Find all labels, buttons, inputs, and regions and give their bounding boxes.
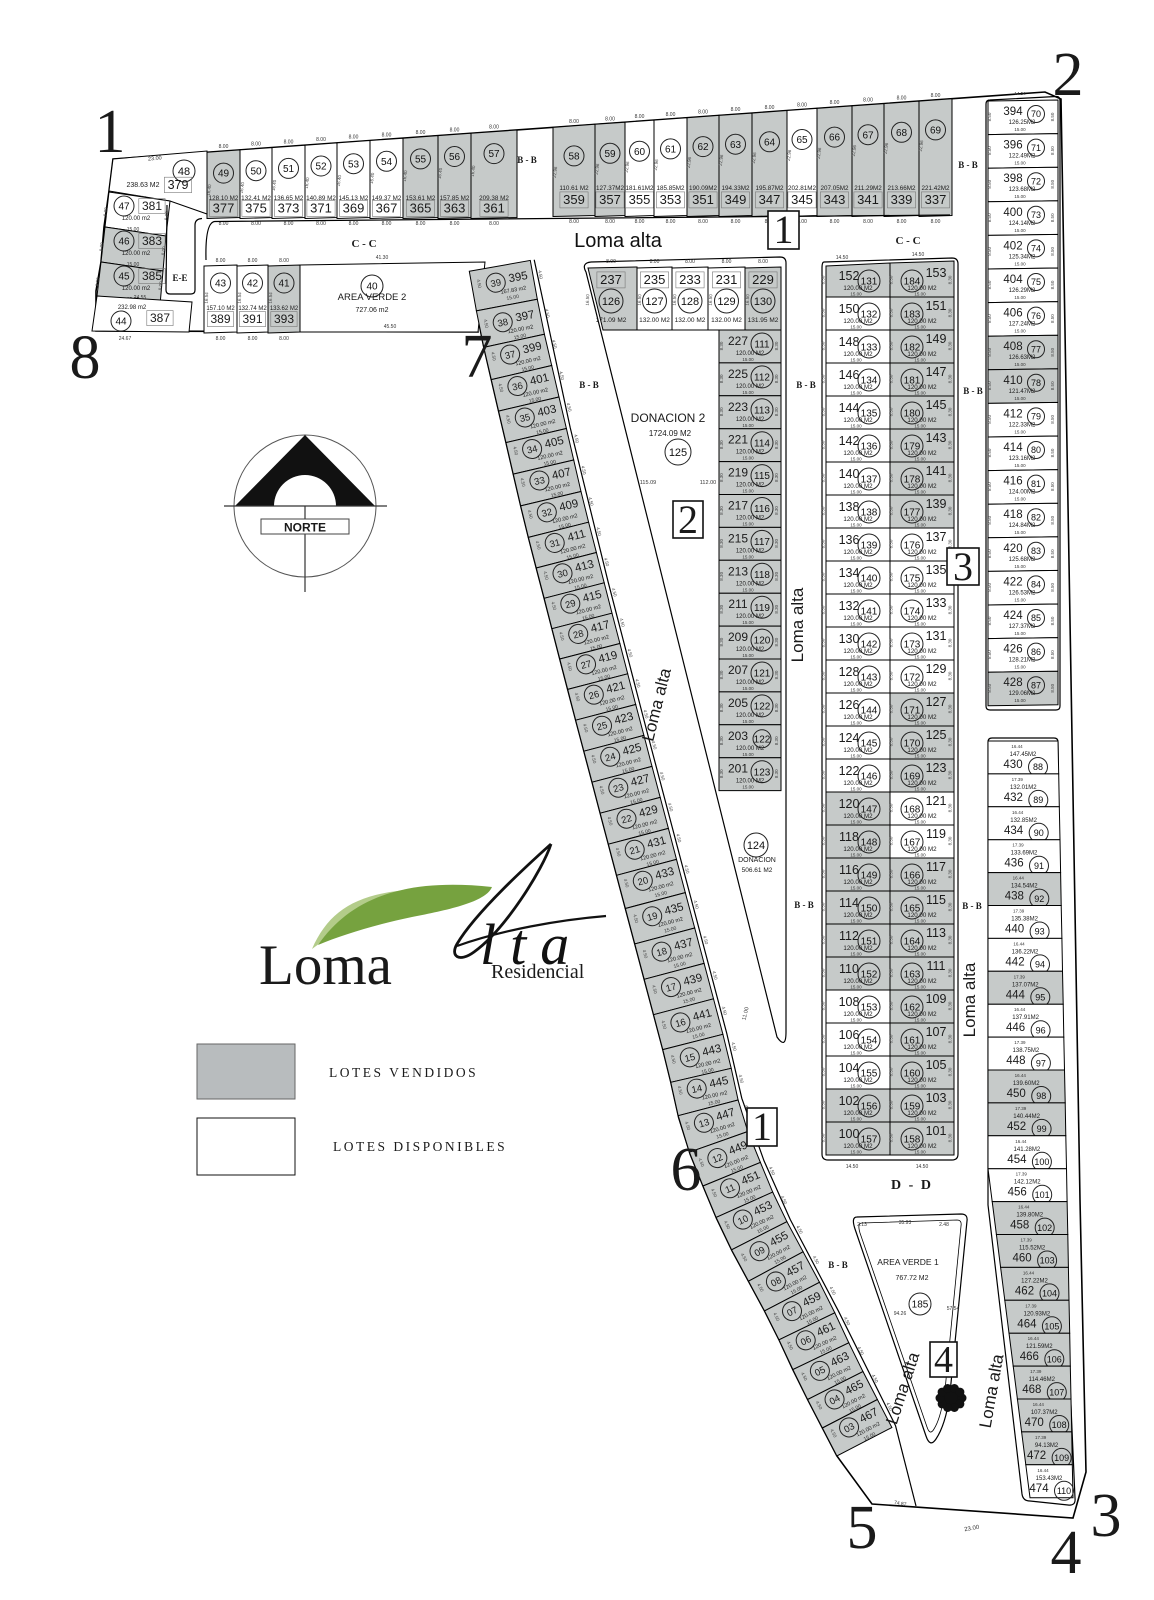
svg-text:85: 85: [1031, 613, 1041, 623]
svg-text:132.85M2: 132.85M2: [1010, 818, 1037, 824]
svg-text:8.30: 8.30: [821, 374, 826, 383]
svg-text:122.49M2: 122.49M2: [1009, 154, 1036, 160]
svg-text:72: 72: [1031, 176, 1041, 186]
svg-text:17.39: 17.39: [1020, 1238, 1032, 1243]
svg-text:8.30: 8.30: [719, 637, 724, 646]
svg-text:15.00: 15.00: [1014, 463, 1026, 468]
svg-text:8.30: 8.30: [948, 341, 953, 350]
svg-text:17.39: 17.39: [1014, 974, 1026, 979]
svg-text:8.30: 8.30: [889, 572, 894, 581]
svg-text:458: 458: [1010, 1220, 1029, 1232]
svg-text:125.34M2: 125.34M2: [1009, 254, 1036, 260]
svg-text:138.75M2: 138.75M2: [1013, 1048, 1040, 1054]
svg-text:8.00: 8.00: [216, 258, 226, 264]
svg-text:14.50: 14.50: [846, 1164, 859, 1170]
svg-text:229: 229: [752, 272, 774, 287]
svg-text:16.44: 16.44: [1023, 1270, 1035, 1275]
svg-text:108: 108: [1052, 1420, 1067, 1430]
svg-text:387: 387: [150, 311, 170, 325]
svg-text:1: 1: [95, 98, 126, 166]
svg-text:59: 59: [604, 149, 616, 160]
svg-text:127: 127: [926, 695, 947, 709]
svg-text:49: 49: [218, 169, 230, 180]
svg-text:140.44M2: 140.44M2: [1013, 1114, 1040, 1120]
svg-text:129: 129: [926, 662, 947, 676]
svg-text:207.05M2: 207.05M2: [820, 185, 849, 192]
svg-text:137: 137: [926, 530, 947, 544]
svg-text:8.00: 8.00: [666, 219, 676, 225]
svg-text:15.00: 15.00: [850, 424, 862, 429]
svg-text:506.61 M2: 506.61 M2: [742, 867, 773, 874]
svg-text:446: 446: [1006, 1022, 1025, 1034]
svg-text:45.50: 45.50: [384, 324, 397, 330]
svg-text:107.37M2: 107.37M2: [1031, 1410, 1058, 1416]
svg-text:86: 86: [1031, 647, 1041, 657]
svg-text:AREA VERDE 1: AREA VERDE 1: [877, 1257, 939, 1267]
svg-text:132.01M2: 132.01M2: [1010, 785, 1037, 791]
svg-text:88: 88: [1033, 762, 1043, 772]
svg-text:8.30: 8.30: [719, 571, 724, 580]
svg-text:16.44: 16.44: [1018, 1205, 1030, 1210]
svg-text:359: 359: [563, 192, 585, 207]
svg-text:15.00: 15.00: [850, 391, 862, 396]
svg-text:1: 1: [774, 207, 794, 252]
svg-text:400: 400: [1003, 207, 1022, 219]
svg-text:103: 103: [1040, 1256, 1055, 1266]
svg-text:127.37M2: 127.37M2: [596, 185, 625, 192]
svg-text:420: 420: [1003, 543, 1022, 555]
svg-text:238.63 M2: 238.63 M2: [126, 182, 159, 189]
svg-text:111: 111: [926, 959, 945, 973]
svg-text:394: 394: [1003, 106, 1023, 118]
svg-text:98: 98: [1036, 1091, 1046, 1101]
svg-text:8.30: 8.30: [889, 737, 894, 746]
svg-text:43: 43: [215, 279, 227, 290]
svg-text:8.30: 8.30: [889, 1100, 894, 1109]
svg-text:8.30: 8.30: [821, 605, 826, 614]
svg-text:139.60M2: 139.60M2: [1013, 1081, 1040, 1087]
svg-text:15.00: 15.00: [914, 985, 926, 990]
svg-text:Loma: Loma: [259, 934, 392, 997]
svg-text:8.30: 8.30: [948, 308, 953, 317]
svg-text:54: 54: [381, 157, 393, 168]
svg-text:66: 66: [829, 133, 841, 144]
svg-text:82: 82: [1031, 512, 1041, 522]
svg-text:126.53M2: 126.53M2: [1009, 590, 1036, 596]
svg-text:8.00: 8.00: [416, 221, 426, 227]
svg-text:77: 77: [1031, 344, 1041, 354]
svg-text:8.00: 8.00: [489, 221, 499, 227]
svg-text:15.00: 15.00: [1014, 665, 1026, 670]
svg-text:8.30: 8.30: [889, 473, 894, 482]
svg-text:114: 114: [839, 896, 859, 910]
svg-text:8.30: 8.30: [774, 374, 779, 383]
svg-text:129: 129: [717, 296, 735, 308]
svg-text:15.00: 15.00: [914, 589, 926, 594]
svg-text:15.00: 15.00: [1014, 530, 1026, 535]
svg-text:17.39: 17.39: [1030, 1369, 1042, 1374]
svg-text:418: 418: [1003, 509, 1022, 521]
svg-text:69: 69: [930, 126, 942, 137]
svg-text:341: 341: [857, 192, 879, 207]
svg-text:73: 73: [1031, 210, 1041, 220]
svg-text:139.80M2: 139.80M2: [1016, 1213, 1043, 1219]
svg-text:8.00: 8.00: [605, 219, 615, 225]
svg-text:402: 402: [1003, 240, 1022, 252]
svg-text:137.07M2: 137.07M2: [1012, 982, 1039, 988]
svg-text:8.30: 8.30: [889, 935, 894, 944]
svg-text:57.54: 57.54: [947, 1306, 960, 1312]
svg-text:4: 4: [934, 1339, 953, 1381]
svg-text:123: 123: [926, 761, 947, 775]
svg-text:17.39: 17.39: [1013, 909, 1025, 914]
svg-text:106: 106: [1047, 1354, 1062, 1364]
svg-text:428: 428: [1003, 677, 1022, 689]
svg-text:8.50: 8.50: [1050, 515, 1055, 524]
svg-text:15.00: 15.00: [742, 587, 754, 592]
svg-text:8: 8: [70, 324, 101, 392]
svg-text:8.00: 8.00: [284, 221, 294, 227]
svg-text:385: 385: [142, 269, 162, 283]
svg-text:40: 40: [366, 282, 378, 293]
svg-text:406: 406: [1003, 308, 1022, 320]
svg-text:15.00: 15.00: [850, 556, 862, 561]
svg-text:15.00: 15.00: [914, 919, 926, 924]
svg-text:8.00: 8.00: [489, 125, 499, 131]
svg-text:8.30: 8.30: [948, 836, 953, 845]
svg-text:120: 120: [839, 797, 860, 811]
svg-text:15.00: 15.00: [1014, 429, 1026, 434]
svg-text:15.00: 15.00: [850, 325, 862, 330]
svg-text:8.50: 8.50: [987, 247, 992, 256]
svg-text:105: 105: [926, 1058, 947, 1072]
svg-text:117: 117: [754, 537, 770, 548]
svg-text:8.50: 8.50: [987, 549, 992, 558]
svg-text:45: 45: [118, 272, 130, 283]
svg-text:15.00: 15.00: [914, 292, 926, 297]
svg-text:8.30: 8.30: [821, 506, 826, 515]
svg-text:91: 91: [1034, 861, 1044, 871]
svg-text:50: 50: [250, 166, 262, 177]
svg-text:90: 90: [1034, 828, 1044, 838]
svg-text:15.00: 15.00: [914, 325, 926, 330]
svg-text:8.30: 8.30: [719, 341, 724, 350]
svg-text:101: 101: [1035, 1190, 1050, 1200]
svg-text:83: 83: [1031, 546, 1041, 556]
svg-text:119: 119: [926, 827, 946, 841]
svg-text:130: 130: [839, 632, 860, 646]
svg-text:213: 213: [728, 564, 748, 578]
svg-text:122: 122: [839, 764, 860, 778]
svg-text:15.00: 15.00: [850, 1051, 862, 1056]
svg-text:78: 78: [1031, 378, 1041, 388]
svg-text:15.00: 15.00: [1014, 497, 1026, 502]
svg-text:363: 363: [444, 201, 466, 216]
svg-text:8.00: 8.00: [216, 336, 226, 342]
svg-text:16.50: 16.50: [585, 294, 591, 306]
svg-text:89: 89: [1033, 795, 1043, 805]
svg-text:17.39: 17.39: [1025, 1303, 1037, 1308]
svg-text:128.21M2: 128.21M2: [1009, 658, 1036, 664]
svg-text:8.30: 8.30: [774, 341, 779, 350]
svg-text:2: 2: [1053, 41, 1084, 109]
svg-text:424: 424: [1003, 610, 1023, 622]
svg-text:101: 101: [926, 1124, 947, 1138]
svg-text:133: 133: [926, 596, 947, 610]
svg-text:81: 81: [1031, 479, 1041, 489]
svg-text:8.00: 8.00: [765, 105, 775, 111]
svg-text:15.00: 15.00: [742, 686, 754, 691]
svg-text:DONACION 2: DONACION 2: [631, 411, 706, 425]
svg-text:15.00: 15.00: [850, 688, 862, 693]
svg-text:126: 126: [839, 698, 860, 712]
svg-text:452: 452: [1007, 1121, 1026, 1133]
svg-text:349: 349: [725, 192, 747, 207]
svg-text:8.30: 8.30: [948, 671, 953, 680]
svg-text:16.50: 16.50: [745, 294, 751, 306]
svg-text:134.54M2: 134.54M2: [1011, 884, 1038, 890]
svg-text:16.54: 16.54: [237, 292, 243, 304]
svg-text:8.30: 8.30: [889, 605, 894, 614]
svg-text:396: 396: [1003, 140, 1022, 152]
svg-text:8.30: 8.30: [774, 571, 779, 580]
svg-text:118: 118: [839, 830, 859, 844]
svg-text:118: 118: [754, 570, 770, 581]
svg-text:8.00: 8.00: [316, 221, 326, 227]
svg-text:8.30: 8.30: [889, 836, 894, 845]
svg-text:8.50: 8.50: [1050, 650, 1055, 659]
svg-text:94.26: 94.26: [894, 1311, 907, 1317]
svg-text:8.00: 8.00: [279, 336, 289, 342]
svg-text:115.09: 115.09: [640, 480, 656, 486]
svg-text:147: 147: [926, 365, 947, 379]
svg-text:8.30: 8.30: [821, 737, 826, 746]
svg-text:8.30: 8.30: [821, 1034, 826, 1043]
svg-text:15.00: 15.00: [850, 820, 862, 825]
svg-text:8.30: 8.30: [719, 440, 724, 449]
svg-text:454: 454: [1007, 1154, 1027, 1166]
svg-text:NORTE: NORTE: [284, 521, 326, 535]
svg-text:142: 142: [839, 434, 860, 448]
svg-text:8.00: 8.00: [863, 98, 873, 104]
svg-text:2: 2: [678, 497, 698, 542]
svg-text:464: 464: [1017, 1318, 1037, 1330]
svg-text:111: 111: [754, 340, 770, 351]
svg-text:8.50: 8.50: [987, 650, 992, 659]
svg-text:14.50: 14.50: [916, 1164, 929, 1170]
svg-text:8.00: 8.00: [450, 221, 460, 227]
svg-text:438: 438: [1005, 891, 1024, 903]
svg-text:15.00: 15.00: [850, 853, 862, 858]
svg-text:39: 39: [490, 277, 502, 290]
svg-text:153.43M2: 153.43M2: [1036, 1476, 1063, 1482]
svg-text:8.00: 8.00: [251, 142, 261, 148]
svg-text:15.00: 15.00: [850, 589, 862, 594]
svg-text:17.39: 17.39: [1035, 1435, 1047, 1440]
svg-text:8.30: 8.30: [948, 1034, 953, 1043]
svg-text:8.00: 8.00: [698, 219, 708, 225]
svg-text:41: 41: [278, 279, 290, 290]
svg-text:351: 351: [692, 192, 714, 207]
svg-text:104: 104: [839, 1061, 860, 1075]
svg-text:8.30: 8.30: [948, 1001, 953, 1010]
svg-text:8.00: 8.00: [931, 219, 941, 225]
svg-text:474: 474: [1029, 1483, 1049, 1495]
svg-text:123.16M2: 123.16M2: [1009, 456, 1036, 462]
svg-text:121: 121: [926, 794, 947, 808]
svg-text:15.00: 15.00: [742, 423, 754, 428]
svg-text:125: 125: [669, 447, 687, 459]
svg-text:8.30: 8.30: [948, 935, 953, 944]
svg-text:339: 339: [891, 192, 913, 207]
svg-text:8.50: 8.50: [987, 415, 992, 424]
svg-text:129.06M2: 129.06M2: [1009, 691, 1036, 697]
svg-text:16.44: 16.44: [1011, 744, 1023, 749]
svg-text:389: 389: [210, 312, 230, 326]
svg-text:105: 105: [1044, 1322, 1059, 1332]
svg-text:84: 84: [1031, 580, 1041, 590]
svg-text:337: 337: [925, 192, 947, 207]
svg-text:8.00: 8.00: [897, 95, 907, 101]
svg-text:219: 219: [728, 466, 748, 480]
svg-text:96: 96: [1036, 1025, 1046, 1035]
svg-text:15.00: 15.00: [914, 787, 926, 792]
svg-text:7: 7: [462, 323, 493, 391]
svg-text:434: 434: [1004, 825, 1024, 837]
svg-text:145: 145: [926, 398, 947, 412]
svg-text:147.45M2: 147.45M2: [1010, 752, 1037, 758]
svg-text:53: 53: [348, 159, 360, 170]
svg-text:8.30: 8.30: [889, 1001, 894, 1010]
svg-text:4: 4: [1051, 1519, 1082, 1587]
svg-text:205: 205: [728, 696, 748, 710]
svg-text:15.00: 15.00: [850, 292, 862, 297]
svg-text:74: 74: [1031, 244, 1041, 254]
svg-text:15.00: 15.00: [850, 1084, 862, 1089]
svg-text:8.30: 8.30: [821, 1067, 826, 1076]
svg-text:60: 60: [634, 147, 646, 158]
svg-text:195.87M2: 195.87M2: [755, 185, 784, 192]
svg-text:17.39: 17.39: [1012, 777, 1024, 782]
svg-text:8.30: 8.30: [774, 736, 779, 745]
svg-text:126: 126: [602, 296, 620, 308]
svg-text:767.72 M2: 767.72 M2: [895, 1275, 928, 1282]
svg-text:23.00: 23.00: [148, 155, 162, 162]
svg-text:15.00: 15.00: [1014, 698, 1026, 703]
svg-text:460: 460: [1013, 1253, 1032, 1265]
svg-text:B - B: B - B: [828, 1260, 848, 1270]
svg-text:15.00: 15.00: [850, 655, 862, 660]
svg-text:70: 70: [1031, 109, 1041, 119]
svg-text:15.00: 15.00: [1014, 329, 1026, 334]
svg-text:15.00: 15.00: [850, 1150, 862, 1155]
svg-text:16.44: 16.44: [1013, 941, 1025, 946]
svg-text:8.00: 8.00: [931, 93, 941, 99]
svg-text:143: 143: [926, 431, 947, 445]
svg-text:8.50: 8.50: [1050, 616, 1055, 625]
svg-text:151: 151: [926, 299, 947, 313]
svg-text:15.00: 15.00: [914, 688, 926, 693]
svg-text:8.00: 8.00: [569, 119, 579, 125]
svg-text:185: 185: [912, 1300, 929, 1311]
svg-text:61: 61: [665, 145, 677, 156]
svg-text:8.30: 8.30: [821, 803, 826, 812]
svg-text:120.93M2: 120.93M2: [1024, 1311, 1051, 1317]
svg-text:106: 106: [839, 1028, 860, 1042]
svg-text:141.28M2: 141.28M2: [1014, 1147, 1041, 1153]
svg-text:121.47M2: 121.47M2: [1009, 389, 1036, 395]
svg-text:416: 416: [1003, 476, 1022, 488]
svg-text:8.30: 8.30: [774, 769, 779, 778]
svg-text:8.50: 8.50: [1050, 347, 1055, 356]
svg-text:8.30: 8.30: [948, 440, 953, 449]
svg-text:8.50: 8.50: [1050, 146, 1055, 155]
svg-text:8.30: 8.30: [889, 374, 894, 383]
svg-text:94: 94: [1035, 960, 1045, 970]
svg-text:8.50: 8.50: [987, 381, 992, 390]
svg-text:430: 430: [1003, 759, 1022, 771]
svg-text:8.00: 8.00: [349, 221, 359, 227]
svg-text:201: 201: [728, 762, 748, 776]
svg-text:8.30: 8.30: [774, 604, 779, 613]
svg-text:15.00: 15.00: [914, 1150, 926, 1155]
svg-text:8.30: 8.30: [774, 703, 779, 712]
svg-text:107: 107: [1049, 1387, 1064, 1397]
svg-text:15.00: 15.00: [1014, 127, 1026, 132]
svg-text:8.50: 8.50: [1050, 549, 1055, 558]
svg-text:8.30: 8.30: [948, 737, 953, 746]
svg-text:8.50: 8.50: [1050, 247, 1055, 256]
svg-text:5: 5: [847, 1494, 878, 1562]
svg-text:8.30: 8.30: [719, 506, 724, 515]
svg-text:15.00: 15.00: [914, 457, 926, 462]
svg-text:15.00: 15.00: [1014, 161, 1026, 166]
svg-text:16.44: 16.44: [1015, 1073, 1027, 1078]
svg-text:8.50: 8.50: [987, 482, 992, 491]
svg-text:8.00: 8.00: [279, 258, 289, 264]
svg-text:130: 130: [754, 296, 772, 308]
svg-text:8.00: 8.00: [830, 100, 840, 106]
svg-text:8.30: 8.30: [821, 539, 826, 548]
svg-text:367: 367: [376, 201, 398, 216]
svg-text:8.00: 8.00: [685, 259, 695, 265]
svg-text:8.30: 8.30: [948, 869, 953, 878]
svg-text:8.30: 8.30: [774, 407, 779, 416]
svg-text:456: 456: [1008, 1187, 1027, 1199]
svg-text:8.30: 8.30: [948, 803, 953, 812]
svg-text:136.22M2: 136.22M2: [1012, 949, 1039, 955]
svg-text:8.30: 8.30: [948, 539, 953, 548]
svg-text:109: 109: [1054, 1453, 1069, 1463]
svg-text:15.00: 15.00: [914, 754, 926, 759]
svg-text:15.00: 15.00: [742, 752, 754, 757]
svg-text:468: 468: [1022, 1384, 1041, 1396]
svg-text:8.30: 8.30: [889, 506, 894, 515]
svg-text:38: 38: [497, 317, 510, 330]
svg-text:115: 115: [926, 893, 946, 907]
svg-text:472: 472: [1027, 1450, 1046, 1462]
svg-text:8.30: 8.30: [821, 869, 826, 878]
svg-text:231: 231: [716, 272, 738, 287]
svg-text:16.54: 16.54: [204, 292, 210, 304]
svg-text:79: 79: [1031, 412, 1041, 422]
svg-text:94.13M2: 94.13M2: [1035, 1443, 1059, 1449]
svg-text:15.00: 15.00: [850, 919, 862, 924]
svg-text:15.00: 15.00: [914, 886, 926, 891]
svg-text:24.67: 24.67: [119, 336, 132, 342]
svg-text:16.44: 16.44: [1013, 876, 1025, 881]
svg-text:15.00: 15.00: [914, 721, 926, 726]
